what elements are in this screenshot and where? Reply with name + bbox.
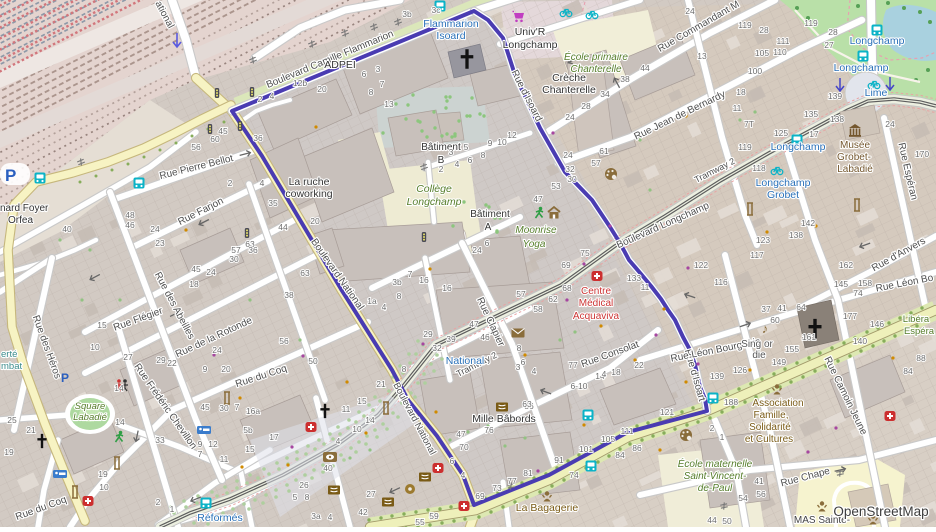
svg-text:La Bagagerie: La Bagagerie <box>516 502 579 514</box>
svg-text:177: 177 <box>843 311 857 321</box>
svg-text:23: 23 <box>155 238 165 248</box>
svg-text:135: 135 <box>804 109 818 119</box>
svg-text:Mille Bâbords: Mille Bâbords <box>472 413 536 425</box>
svg-text:139: 139 <box>710 371 724 381</box>
svg-text:146: 146 <box>870 319 884 329</box>
svg-text:145: 145 <box>834 279 848 289</box>
svg-text:9: 9 <box>488 138 493 148</box>
svg-text:Médical: Médical <box>579 298 613 309</box>
svg-text:9: 9 <box>203 364 208 374</box>
svg-text:105: 105 <box>601 434 615 444</box>
svg-text:19: 19 <box>4 447 14 457</box>
svg-text:188: 188 <box>724 397 738 407</box>
svg-text:École maternelle: École maternelle <box>678 457 753 470</box>
svg-text:158: 158 <box>858 278 872 288</box>
svg-text:4: 4 <box>461 470 466 480</box>
svg-text:47: 47 <box>533 194 543 204</box>
svg-text:4: 4 <box>382 302 387 312</box>
svg-text:41: 41 <box>777 303 787 313</box>
svg-text:24: 24 <box>212 345 222 355</box>
svg-text:2: 2 <box>258 94 263 104</box>
svg-text:149: 149 <box>772 357 786 367</box>
svg-text:122: 122 <box>694 260 708 270</box>
svg-text:Univ'R: Univ'R <box>515 26 546 38</box>
svg-text:6: 6 <box>468 155 473 165</box>
svg-text:28: 28 <box>828 27 838 37</box>
svg-text:24: 24 <box>150 224 160 234</box>
svg-text:Libéra: Libéra <box>903 314 930 325</box>
svg-text:National: National <box>446 355 485 367</box>
svg-text:Yoga: Yoga <box>523 239 546 250</box>
svg-text:Isoard: Isoard <box>436 30 465 42</box>
svg-text:7: 7 <box>408 269 413 279</box>
svg-text:7: 7 <box>235 402 240 412</box>
svg-text:47: 47 <box>469 319 479 329</box>
svg-text:10: 10 <box>352 424 362 434</box>
svg-text:14: 14 <box>114 383 124 393</box>
svg-text:100: 100 <box>748 66 762 76</box>
svg-text:44: 44 <box>707 515 717 525</box>
svg-text:Longchamp: Longchamp <box>850 35 905 47</box>
svg-text:La ruche: La ruche <box>289 176 330 188</box>
svg-text:14: 14 <box>115 417 125 427</box>
svg-text:77: 77 <box>507 476 517 486</box>
svg-text:62: 62 <box>548 294 558 304</box>
svg-text:84: 84 <box>615 450 625 460</box>
svg-text:111: 111 <box>777 36 790 46</box>
svg-text:21: 21 <box>26 425 36 435</box>
svg-text:14: 14 <box>365 415 375 425</box>
svg-text:28: 28 <box>759 25 769 35</box>
svg-text:68: 68 <box>562 283 572 293</box>
svg-text:Acquaviva: Acquaviva <box>573 311 620 322</box>
svg-text:6: 6 <box>362 69 367 79</box>
svg-text:58: 58 <box>533 304 543 314</box>
svg-text:3: 3 <box>516 362 521 372</box>
svg-text:erté: erté <box>1 349 17 360</box>
svg-text:Moonrise: Moonrise <box>515 225 557 236</box>
svg-text:161: 161 <box>802 332 816 342</box>
svg-text:84: 84 <box>903 366 913 376</box>
svg-text:110: 110 <box>773 47 787 57</box>
svg-text:18: 18 <box>189 279 199 289</box>
svg-text:142: 142 <box>801 218 815 228</box>
svg-text:59: 59 <box>429 511 439 521</box>
svg-text:91: 91 <box>554 455 564 465</box>
svg-text:126: 126 <box>733 365 747 375</box>
svg-text:125: 125 <box>774 128 788 138</box>
svg-text:33: 33 <box>155 435 165 445</box>
svg-text:119: 119 <box>738 142 752 152</box>
svg-text:Labadié: Labadié <box>73 412 107 423</box>
svg-text:38: 38 <box>284 290 294 300</box>
svg-text:24: 24 <box>206 267 216 277</box>
svg-text:8: 8 <box>481 150 486 160</box>
svg-text:Réformés: Réformés <box>197 512 243 524</box>
svg-text:29: 29 <box>156 355 166 365</box>
svg-text:44: 44 <box>640 63 650 73</box>
svg-text:Square: Square <box>75 401 106 412</box>
svg-text:45: 45 <box>200 402 210 412</box>
svg-text:47: 47 <box>456 429 466 439</box>
svg-text:16: 16 <box>419 275 429 285</box>
svg-text:Longchamp: Longchamp <box>771 141 826 153</box>
svg-text:57: 57 <box>516 289 526 299</box>
svg-text:24: 24 <box>563 150 573 160</box>
svg-text:coworking: coworking <box>285 188 332 200</box>
svg-text:117: 117 <box>750 250 764 260</box>
svg-text:20: 20 <box>221 364 231 374</box>
svg-text:116: 116 <box>714 277 728 287</box>
svg-text:7T: 7T <box>744 119 754 129</box>
svg-text:50: 50 <box>308 356 318 366</box>
svg-text:18: 18 <box>611 367 621 377</box>
svg-text:24: 24 <box>472 245 482 255</box>
svg-text:6: 6 <box>450 456 455 466</box>
svg-text:die: die <box>752 350 766 361</box>
svg-text:Longchamp: Longchamp <box>756 177 811 189</box>
svg-text:32: 32 <box>565 164 575 174</box>
svg-text:4: 4 <box>260 178 265 188</box>
svg-text:63: 63 <box>300 268 310 278</box>
svg-text:17: 17 <box>809 129 819 139</box>
svg-text:73: 73 <box>492 483 502 493</box>
svg-text:27: 27 <box>824 40 834 50</box>
svg-text:Longchamp: Longchamp <box>503 39 558 51</box>
svg-text:44: 44 <box>278 222 288 232</box>
svg-text:27: 27 <box>123 352 133 362</box>
svg-text:53: 53 <box>551 181 561 191</box>
svg-text:Collège: Collège <box>416 183 452 195</box>
svg-text:3: 3 <box>449 147 454 157</box>
svg-text:Musée: Musée <box>840 140 870 151</box>
svg-text:12: 12 <box>507 130 517 140</box>
svg-text:OpenStreetMap: OpenStreetMap <box>833 504 928 519</box>
svg-text:18: 18 <box>736 87 746 97</box>
svg-text:Espéra: Espéra <box>904 326 935 337</box>
svg-text:28: 28 <box>581 101 591 111</box>
svg-text:15: 15 <box>97 320 107 330</box>
svg-text:74: 74 <box>569 470 579 480</box>
svg-text:8: 8 <box>305 492 310 502</box>
svg-text:ADPEI: ADPEI <box>324 59 356 71</box>
svg-text:mbat: mbat <box>1 361 22 372</box>
svg-text:2: 2 <box>156 497 161 507</box>
svg-text:5b: 5b <box>243 425 253 435</box>
svg-text:69: 69 <box>475 491 485 501</box>
svg-text:133: 133 <box>627 273 641 283</box>
svg-text:61: 61 <box>599 146 609 156</box>
svg-text:24: 24 <box>565 112 575 122</box>
svg-text:A: A <box>485 222 492 233</box>
svg-text:54: 54 <box>738 493 748 503</box>
svg-text:Solidarité: Solidarité <box>749 422 791 433</box>
svg-text:25: 25 <box>7 415 17 425</box>
svg-text:162: 162 <box>839 260 853 270</box>
svg-text:9: 9 <box>198 439 203 449</box>
svg-text:20: 20 <box>317 84 327 94</box>
svg-text:48: 48 <box>125 210 135 220</box>
svg-text:10: 10 <box>497 137 507 147</box>
svg-text:88: 88 <box>916 353 926 363</box>
svg-text:3b: 3b <box>392 277 402 287</box>
svg-text:119: 119 <box>804 18 818 28</box>
svg-text:4: 4 <box>455 159 460 169</box>
svg-text:35: 35 <box>268 198 278 208</box>
svg-text:8: 8 <box>397 291 402 301</box>
svg-text:24: 24 <box>885 119 895 129</box>
svg-text:Longchamp: Longchamp <box>407 196 462 208</box>
svg-text:Sing or: Sing or <box>741 339 773 350</box>
svg-text:63: 63 <box>522 399 532 409</box>
svg-text:et Cultures: et Cultures <box>745 434 793 445</box>
svg-text:45: 45 <box>191 264 201 274</box>
svg-text:138: 138 <box>789 230 803 240</box>
svg-text:119: 119 <box>738 20 752 30</box>
svg-text:3a: 3a <box>311 511 321 521</box>
svg-text:36: 36 <box>253 133 263 143</box>
svg-text:38: 38 <box>620 74 630 84</box>
svg-text:8: 8 <box>369 87 374 97</box>
svg-text:1: 1 <box>720 432 725 442</box>
svg-text:56: 56 <box>191 142 201 152</box>
svg-text:21: 21 <box>376 379 386 389</box>
svg-text:Longchamp: Longchamp <box>834 62 889 74</box>
svg-text:nard Foyer: nard Foyer <box>0 203 49 214</box>
svg-text:138: 138 <box>830 114 844 124</box>
svg-text:6: 6 <box>485 238 490 248</box>
svg-text:139: 139 <box>828 91 842 101</box>
svg-text:13: 13 <box>384 99 394 109</box>
svg-text:76: 76 <box>484 425 494 435</box>
svg-text:64: 64 <box>796 302 806 312</box>
svg-text:22: 22 <box>167 358 177 368</box>
svg-text:5: 5 <box>464 142 469 152</box>
svg-text:2: 2 <box>439 164 444 174</box>
svg-text:4: 4 <box>270 91 275 101</box>
svg-text:17: 17 <box>269 432 279 442</box>
svg-text:155: 155 <box>785 344 799 354</box>
svg-text:13: 13 <box>697 51 707 61</box>
svg-text:7: 7 <box>380 79 385 89</box>
svg-text:170: 170 <box>915 149 929 159</box>
svg-text:15: 15 <box>357 396 367 406</box>
svg-text:77: 77 <box>568 360 578 370</box>
svg-text:22: 22 <box>634 360 644 370</box>
svg-text:École primaire: École primaire <box>564 50 628 63</box>
svg-text:12b: 12b <box>293 78 307 88</box>
svg-text:39: 39 <box>446 334 456 344</box>
svg-text:Centre: Centre <box>581 286 611 297</box>
svg-text:Chanterelle: Chanterelle <box>542 84 596 96</box>
svg-text:36: 36 <box>248 245 258 255</box>
svg-text:Saint-Vincent-: Saint-Vincent- <box>684 471 747 482</box>
svg-text:81: 81 <box>523 468 533 478</box>
svg-text:1: 1 <box>170 504 175 514</box>
svg-text:2: 2 <box>710 423 715 433</box>
svg-text:101: 101 <box>579 444 593 454</box>
svg-text:86: 86 <box>632 443 642 453</box>
svg-text:57: 57 <box>591 158 601 168</box>
svg-text:56: 56 <box>756 489 766 499</box>
svg-text:37: 37 <box>761 304 771 314</box>
svg-text:4: 4 <box>532 366 537 376</box>
svg-text:11: 11 <box>641 282 650 292</box>
svg-text:♪: ♪ <box>762 321 769 336</box>
svg-text:3: 3 <box>376 64 381 74</box>
svg-text:55: 55 <box>415 517 425 527</box>
svg-text:111: 111 <box>621 426 634 436</box>
svg-text:30: 30 <box>567 174 577 184</box>
svg-text:8: 8 <box>517 343 522 353</box>
svg-text:4: 4 <box>602 369 607 379</box>
svg-text:4: 4 <box>336 436 341 446</box>
svg-text:Labadié: Labadié <box>837 164 873 175</box>
svg-text:Bâtiment: Bâtiment <box>470 209 510 220</box>
svg-text:46: 46 <box>125 220 135 230</box>
svg-text:Flammarion: Flammarion <box>423 18 479 30</box>
svg-text:26: 26 <box>299 480 309 490</box>
svg-text:11: 11 <box>342 404 351 414</box>
svg-text:29: 29 <box>423 329 433 339</box>
svg-text:32: 32 <box>432 343 442 353</box>
svg-text:6-10: 6-10 <box>570 381 587 391</box>
svg-text:8: 8 <box>402 364 407 374</box>
svg-text:40: 40 <box>323 463 333 473</box>
svg-text:40: 40 <box>62 224 72 234</box>
svg-text:42: 42 <box>358 507 368 517</box>
svg-text:70: 70 <box>459 442 469 452</box>
svg-text:10: 10 <box>90 342 100 352</box>
svg-text:10: 10 <box>99 482 109 492</box>
svg-text:56: 56 <box>279 336 289 346</box>
svg-text:11: 11 <box>733 103 742 113</box>
svg-text:P: P <box>5 166 16 185</box>
svg-text:1a: 1a <box>367 296 377 306</box>
svg-text:140: 140 <box>853 336 867 346</box>
svg-text:60: 60 <box>210 134 220 144</box>
svg-text:3b: 3b <box>402 9 412 19</box>
svg-text:34: 34 <box>600 89 610 99</box>
svg-text:6: 6 <box>521 357 526 367</box>
svg-text:50: 50 <box>722 516 732 526</box>
svg-text:74: 74 <box>853 288 863 298</box>
svg-text:19: 19 <box>98 469 108 479</box>
svg-text:30: 30 <box>229 254 239 264</box>
svg-text:121: 121 <box>660 407 674 417</box>
svg-text:15: 15 <box>245 444 255 454</box>
svg-text:30: 30 <box>219 403 229 413</box>
svg-text:4: 4 <box>328 512 333 522</box>
svg-text:3c: 3c <box>432 5 442 15</box>
svg-text:16: 16 <box>442 283 452 293</box>
svg-text:Bâtiment: Bâtiment <box>421 142 461 153</box>
svg-text:Grobet: Grobet <box>767 189 799 201</box>
svg-text:24: 24 <box>685 6 695 16</box>
svg-text:2: 2 <box>228 178 233 188</box>
svg-text:46: 46 <box>480 332 490 342</box>
svg-text:69: 69 <box>561 260 571 270</box>
svg-text:27: 27 <box>366 489 376 499</box>
svg-text:Association: Association <box>752 398 803 409</box>
svg-text:Crèche: Crèche <box>552 72 586 84</box>
svg-text:7: 7 <box>198 449 203 459</box>
svg-text:41: 41 <box>754 476 764 486</box>
svg-text:Orfea: Orfea <box>8 215 33 226</box>
svg-text:75: 75 <box>580 248 590 258</box>
svg-text:de-Paul: de-Paul <box>698 483 733 494</box>
svg-text:12: 12 <box>208 439 218 449</box>
svg-text:Grobet-: Grobet- <box>837 152 871 163</box>
svg-text:16a: 16a <box>246 406 260 416</box>
svg-text:123: 123 <box>756 235 770 245</box>
svg-text:20: 20 <box>310 216 320 226</box>
svg-text:118: 118 <box>752 163 766 173</box>
svg-text:105: 105 <box>755 48 769 58</box>
svg-text:5: 5 <box>293 492 298 502</box>
svg-text:60: 60 <box>770 315 780 325</box>
svg-text:Famille,: Famille, <box>753 410 788 421</box>
svg-text:Lime: Lime <box>865 87 888 99</box>
svg-text:11: 11 <box>220 454 229 464</box>
